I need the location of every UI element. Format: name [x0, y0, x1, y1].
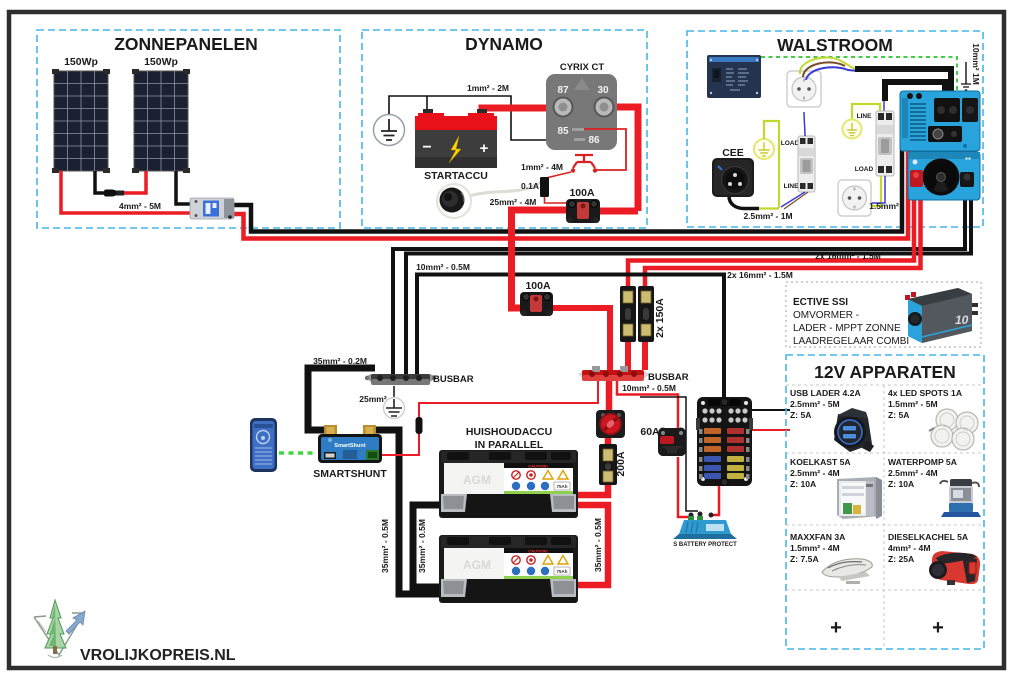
svg-text:−: −: [422, 139, 431, 156]
svg-text:Z: 25A: Z: 25A: [888, 554, 914, 564]
svg-text:2.5mm² - 4M: 2.5mm² - 4M: [888, 468, 938, 478]
svg-text:2.5mm² - 1M: 2.5mm² - 1M: [743, 211, 792, 221]
svg-text:Z: 5A: Z: 5A: [790, 410, 811, 420]
svg-text:2x 150A: 2x 150A: [654, 298, 666, 338]
svg-text:25mm²: 25mm²: [359, 394, 387, 404]
svg-text:35mm² - 0.2M: 35mm² - 0.2M: [313, 356, 367, 366]
svg-text:85: 85: [557, 126, 569, 137]
svg-text:CYRIX CT: CYRIX CT: [560, 62, 605, 73]
svg-text:●●: ●●: [965, 156, 971, 162]
svg-text:4x LED SPOTS 1A: 4x LED SPOTS 1A: [888, 388, 962, 398]
svg-text:LINE: LINE: [784, 183, 799, 190]
svg-text:2x 16mm² - 1.5M: 2x 16mm² - 1.5M: [727, 270, 793, 280]
svg-text:LOAD: LOAD: [781, 140, 800, 147]
svg-text:LINE: LINE: [857, 113, 872, 120]
svg-text:OMVORMER -: OMVORMER -: [793, 310, 859, 321]
svg-text:1.5mm²: 1.5mm²: [869, 201, 899, 211]
svg-text:BUSBAR: BUSBAR: [433, 374, 474, 385]
svg-text:2.5mm² - 5M: 2.5mm² - 5M: [790, 399, 840, 409]
svg-text:SMARTSHUNT: SMARTSHUNT: [313, 468, 387, 480]
svg-text:1mm² - 4M: 1mm² - 4M: [521, 162, 563, 172]
svg-text:2x 16mm² - 1.5M: 2x 16mm² - 1.5M: [815, 251, 881, 261]
svg-text:BUSBAR: BUSBAR: [648, 372, 689, 383]
svg-text:200A: 200A: [615, 451, 627, 477]
svg-text:WALSTROOM: WALSTROOM: [777, 35, 893, 55]
svg-text:10mm² - 0.5M: 10mm² - 0.5M: [622, 383, 676, 393]
svg-text:10mm² 1M: 10mm² 1M: [971, 43, 981, 85]
svg-text:10mm² - 0.5M: 10mm² - 0.5M: [416, 262, 470, 272]
svg-text:Z: 10A: Z: 10A: [790, 479, 816, 489]
svg-text:SmartShunt: SmartShunt: [334, 443, 365, 449]
svg-text:USB LADER 4.2A: USB LADER 4.2A: [790, 388, 861, 398]
svg-text:+: +: [480, 140, 489, 157]
svg-text:ZONNEPANELEN: ZONNEPANELEN: [114, 34, 258, 54]
svg-text:1.5mm² - 5M: 1.5mm² - 5M: [888, 399, 938, 409]
svg-text:CEE: CEE: [722, 147, 744, 159]
svg-text:35mm² - 0.5M: 35mm² - 0.5M: [593, 518, 603, 572]
svg-text:DIESELKACHEL 5A: DIESELKACHEL 5A: [888, 532, 968, 542]
svg-text:Z: 7.5A: Z: 7.5A: [790, 554, 819, 564]
svg-text:HUISHOUDACCU: HUISHOUDACCU: [466, 426, 552, 438]
svg-text:10: 10: [955, 313, 969, 327]
svg-text:LOAD: LOAD: [855, 166, 874, 173]
svg-text:86: 86: [588, 135, 600, 146]
svg-text:ECTIVE SSI: ECTIVE SSI: [793, 297, 848, 308]
svg-text:STARTACCU: STARTACCU: [424, 170, 488, 182]
svg-text:150Wp: 150Wp: [64, 56, 98, 68]
svg-text:35mm² - 0.5M: 35mm² - 0.5M: [417, 519, 427, 573]
svg-text:0.1A: 0.1A: [521, 181, 539, 191]
svg-text:150Wp: 150Wp: [144, 56, 178, 68]
svg-text:100A: 100A: [525, 280, 551, 292]
svg-text:30: 30: [597, 85, 609, 96]
svg-text:LADER - MPPT ZONNE: LADER - MPPT ZONNE: [793, 323, 901, 334]
svg-text:KOELKAST 5A: KOELKAST 5A: [790, 457, 851, 467]
svg-text:+: +: [830, 617, 842, 639]
svg-text:2.5mm² - 4M: 2.5mm² - 4M: [790, 468, 840, 478]
svg-text:35mm² - 0.5M: 35mm² - 0.5M: [380, 519, 390, 573]
svg-text:IN PARALLEL: IN PARALLEL: [475, 439, 544, 451]
svg-text:1.5mm² - 4M: 1.5mm² - 4M: [790, 543, 840, 553]
svg-text:87: 87: [557, 85, 569, 96]
svg-text:MAXXFAN 3A: MAXXFAN 3A: [790, 532, 845, 542]
svg-text:4mm² - 5M: 4mm² - 5M: [119, 201, 161, 211]
svg-text:S BATTERY PROTECT: S BATTERY PROTECT: [673, 542, 737, 548]
svg-text:VROLIJKOPREIS.NL: VROLIJKOPREIS.NL: [80, 647, 236, 664]
svg-text:100A: 100A: [569, 187, 595, 199]
svg-text:LAADREGELAAR COMBI: LAADREGELAAR COMBI: [793, 336, 909, 347]
svg-text:DYNAMO: DYNAMO: [465, 34, 543, 54]
svg-text:Z: 5A: Z: 5A: [888, 410, 909, 420]
svg-text:+: +: [932, 617, 944, 639]
svg-text:Z: 10A: Z: 10A: [888, 479, 914, 489]
svg-text:12V APPARATEN: 12V APPARATEN: [814, 362, 956, 382]
svg-text:WATERPOMP 5A: WATERPOMP 5A: [888, 457, 957, 467]
svg-text:1mm² - 2M: 1mm² - 2M: [467, 83, 509, 93]
svg-text:25mm² - 4M: 25mm² - 4M: [490, 197, 537, 207]
svg-text:4mm² - 4M: 4mm² - 4M: [888, 543, 931, 553]
svg-text:60A: 60A: [640, 426, 660, 438]
